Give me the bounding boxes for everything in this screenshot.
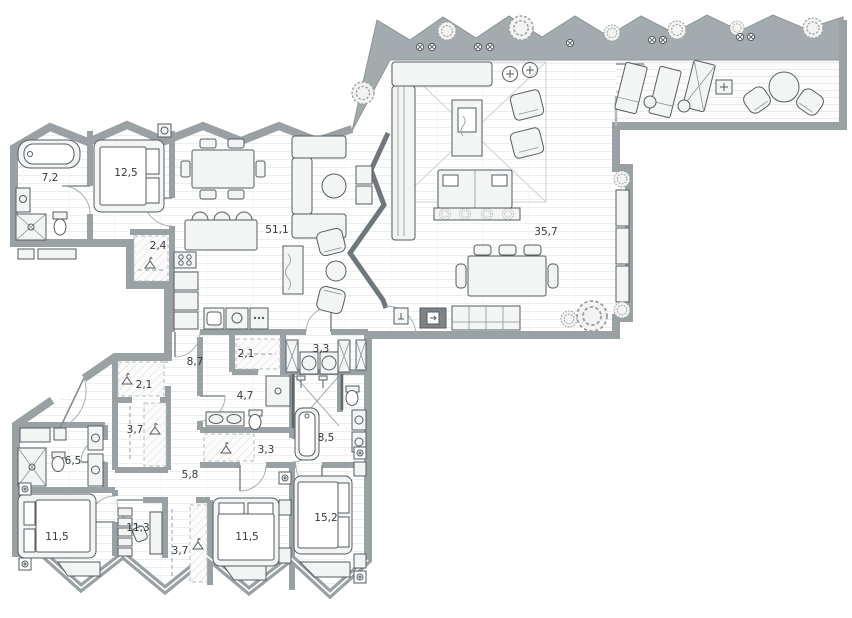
plant-icon [730,21,744,35]
room-area-label: 3,3 [313,343,330,355]
nightstand-icon [279,548,291,563]
room-area-label: 2,1 [238,348,255,360]
vanity-icon [206,412,244,426]
plant-icon [803,18,823,38]
daybed-icon [438,170,512,208]
coffee-table-icon [322,174,346,198]
plant-icon [604,25,620,41]
dining-table-icon [192,150,254,188]
window-sill [18,249,34,259]
planter-row [434,208,520,220]
room-area-label: 15,2 [314,512,337,524]
nightstand-icon [279,500,291,515]
cabinet-icon [356,186,372,204]
sink-icon [16,188,30,212]
round-table-icon [769,72,799,102]
sconce-icon [279,472,291,484]
sink-icon [352,410,366,430]
toilet-icon [54,219,66,235]
shower-icon [266,376,290,406]
stove-icon [158,124,171,137]
toilet-icon [249,415,261,430]
window-sill [38,249,76,259]
vanity-icon [20,428,50,442]
room-area-label: 3,3 [258,444,275,456]
pillow [338,517,349,547]
sconce-icon [354,571,366,583]
toilet-icon [346,391,358,406]
room-area-label: 6,5 [65,455,82,467]
bar-stools [192,212,252,220]
sink-icon [88,426,103,450]
room-area-label: 11,5 [235,531,258,543]
nightstand-icon [354,554,366,568]
bathtub-inner [24,144,74,164]
room-area-label: 11,3 [126,522,149,534]
toilet-tank-icon [53,212,67,219]
pillow [219,503,244,514]
dryer-icon [320,352,338,374]
room-area-label: 4,7 [237,390,254,402]
pillow [24,529,35,552]
closet-south-hatch [204,434,254,461]
plant-icon [509,16,533,40]
side-table-icon [644,96,656,108]
side-table-icon [678,100,690,112]
side-table-icon [326,261,346,281]
room-area-label: 5,8 [182,469,199,481]
mattress [36,500,90,552]
sconce-icon [19,483,31,495]
pillow [24,502,35,525]
toilet-icon [52,457,64,472]
floor-plan-page: 7,2 12,5 2,4 51,1 35,7 8,7 2,1 3,3 2,1 4… [0,0,852,618]
room-area-label: 11,5 [45,531,68,543]
plant-icon [438,22,456,40]
pillow [248,503,273,514]
pillow [146,149,159,174]
plant-icon [577,301,607,331]
room-area-label: 3,7 [127,424,144,436]
dishwasher-icon [226,308,248,329]
bedroom-west-furniture [18,483,100,576]
room-area-label: 51,1 [265,224,288,236]
pillow [146,178,159,203]
room-area-label: 12,5 [114,167,137,179]
room-area-label: 3,7 [172,545,189,557]
plant-icon [352,82,374,104]
desk-icon [150,512,162,554]
washer-icon [300,352,318,374]
pillow [338,483,349,513]
room-area-label: 7,2 [42,172,59,184]
window-bench [614,171,630,318]
kitchen-island-icon [185,220,257,250]
sconce-icon [354,447,366,459]
room-area-label: 8,5 [318,432,335,444]
dining-table-icon [468,256,546,296]
plant-icon [614,171,630,187]
plant-icon [668,21,686,39]
room-area-label: 8,7 [187,356,204,368]
cabinet-icon [356,166,372,184]
room-area-label: 2,1 [136,379,153,391]
room-area-label: 2,4 [150,240,167,252]
nightstand-icon [354,462,366,476]
sink-icon [88,454,103,486]
plant-icon [561,311,577,327]
sconce-icon [19,558,31,570]
room-area-label: 35,7 [534,226,557,238]
floor-plan-drawing: 7,2 12,5 2,4 51,1 35,7 8,7 2,1 3,3 2,1 4… [0,0,852,618]
plant-icon [614,302,630,318]
